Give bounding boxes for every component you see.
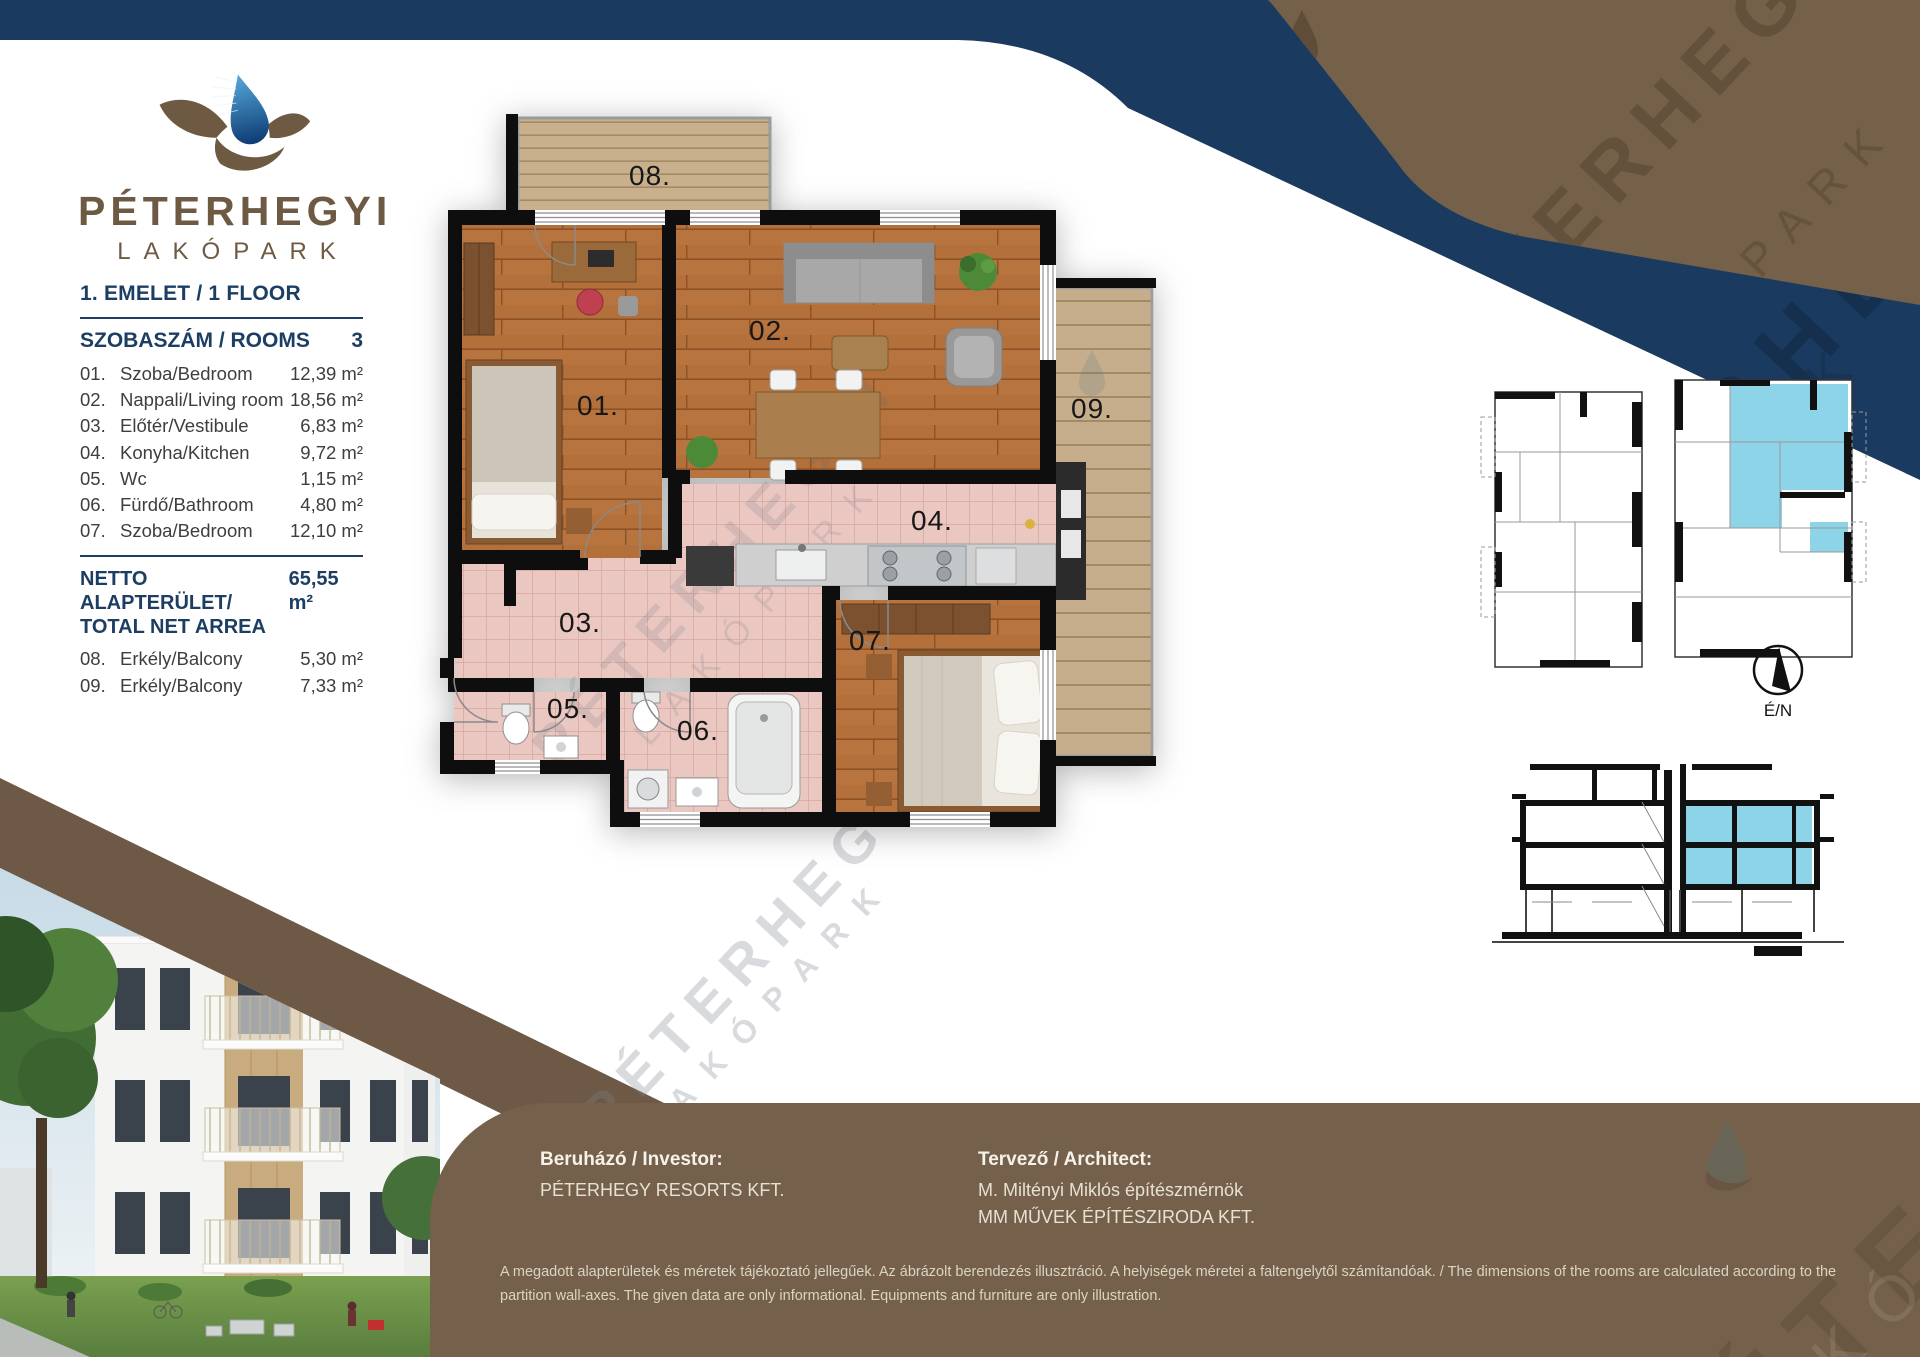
room-label-04: 04. bbox=[911, 505, 953, 536]
brand-title: PÉTERHEGYI bbox=[78, 188, 388, 235]
room-label-05: 05. bbox=[547, 693, 589, 724]
brand-block: PÉTERHEGYI LAKÓPARK bbox=[78, 68, 388, 266]
room-label-01: 01. bbox=[577, 390, 619, 421]
rooms-header: SZOBASZÁM / ROOMS 3 bbox=[80, 329, 363, 353]
table-row: 09. Erkély/Balcony 7,33 m² bbox=[80, 673, 363, 699]
logo-water-drop-icon bbox=[208, 69, 273, 151]
rooms-header-label: SZOBASZÁM / ROOMS bbox=[80, 329, 310, 353]
total-area-value: 65,55 m² bbox=[289, 567, 363, 639]
investor-block: Beruházó / Investor: PÉTERHEGY RESORTS K… bbox=[540, 1149, 784, 1204]
investor-name: PÉTERHEGY RESORTS KFT. bbox=[540, 1177, 784, 1204]
brochure-page: PÉTERHEGYI LAKÓPARK PÉTERHEGYI LAKÓPARK bbox=[0, 0, 1920, 1357]
room-label-07: 07. bbox=[849, 625, 891, 656]
table-row: 04. Konyha/Kitchen 9,72 m² bbox=[80, 440, 363, 466]
total-area-row: NETTO ALAPTERÜLET/ TOTAL NET ARREA 65,55… bbox=[80, 567, 363, 639]
key-plan-right-wing bbox=[1675, 380, 1866, 657]
brand-logo-icon bbox=[145, 68, 321, 180]
divider bbox=[80, 555, 363, 557]
table-row: 01. Szoba/Bedroom 12,39 m² bbox=[80, 361, 363, 387]
table-row: 05. Wc 1,15 m² bbox=[80, 466, 363, 492]
key-plan-overview bbox=[1480, 372, 1872, 692]
footer-watermark-drop-icon bbox=[1692, 1115, 1762, 1195]
table-row: 06. Fürdő/Bathroom 4,80 m² bbox=[80, 492, 363, 518]
room-label-06: 06. bbox=[677, 715, 719, 746]
compass-needle-icon bbox=[1772, 647, 1791, 692]
building-section bbox=[1492, 742, 1858, 964]
photo-apartment-building bbox=[92, 914, 438, 1288]
floor-plan: PÉTERHEGYI LAKÓPARK bbox=[440, 110, 1170, 855]
divider bbox=[80, 317, 363, 319]
compass: É/N bbox=[1748, 642, 1812, 728]
table-row: 07. Szoba/Bedroom 12,10 m² bbox=[80, 518, 363, 544]
brand-subtitle: LAKÓPARK bbox=[78, 238, 388, 266]
info-panel: 1. EMELET / 1 FLOOR SZOBASZÁM / ROOMS 3 … bbox=[80, 282, 363, 699]
floor-title: 1. EMELET / 1 FLOOR bbox=[80, 282, 363, 306]
architect-block: Tervező / Architect: M. Miltényi Miklós … bbox=[978, 1149, 1255, 1231]
room-label-02: 02. bbox=[749, 315, 791, 346]
room-label-03: 03. bbox=[559, 607, 601, 638]
room-label-09: 09. bbox=[1071, 393, 1113, 424]
table-row: 02. Nappali/Living room 18,56 m² bbox=[80, 387, 363, 413]
architect-name: M. Miltényi Miklós építészmérnök bbox=[978, 1177, 1255, 1204]
photo-balconies bbox=[203, 996, 343, 1273]
table-row: 08. Erkély/Balcony 5,30 m² bbox=[80, 646, 363, 672]
footer: Beruházó / Investor: PÉTERHEGY RESORTS K… bbox=[430, 1103, 1920, 1357]
architect-label: Tervező / Architect: bbox=[978, 1149, 1255, 1171]
key-plan-left-wing bbox=[1481, 392, 1642, 667]
section-drawing bbox=[1492, 764, 1844, 956]
disclaimer-text: A megadott alapterületek és méretek tájé… bbox=[500, 1261, 1890, 1309]
room-label-08: 08. bbox=[629, 160, 671, 191]
rooms-count: 3 bbox=[351, 329, 363, 353]
table-row: 03. Előtér/Vestibule 6,83 m² bbox=[80, 413, 363, 439]
investor-label: Beruházó / Investor: bbox=[540, 1149, 784, 1171]
building-photo bbox=[0, 868, 440, 1357]
architect-company: MM MŰVEK ÉPÍTÉSZIRODA KFT. bbox=[978, 1204, 1255, 1231]
compass-label: É/N bbox=[1764, 701, 1792, 720]
